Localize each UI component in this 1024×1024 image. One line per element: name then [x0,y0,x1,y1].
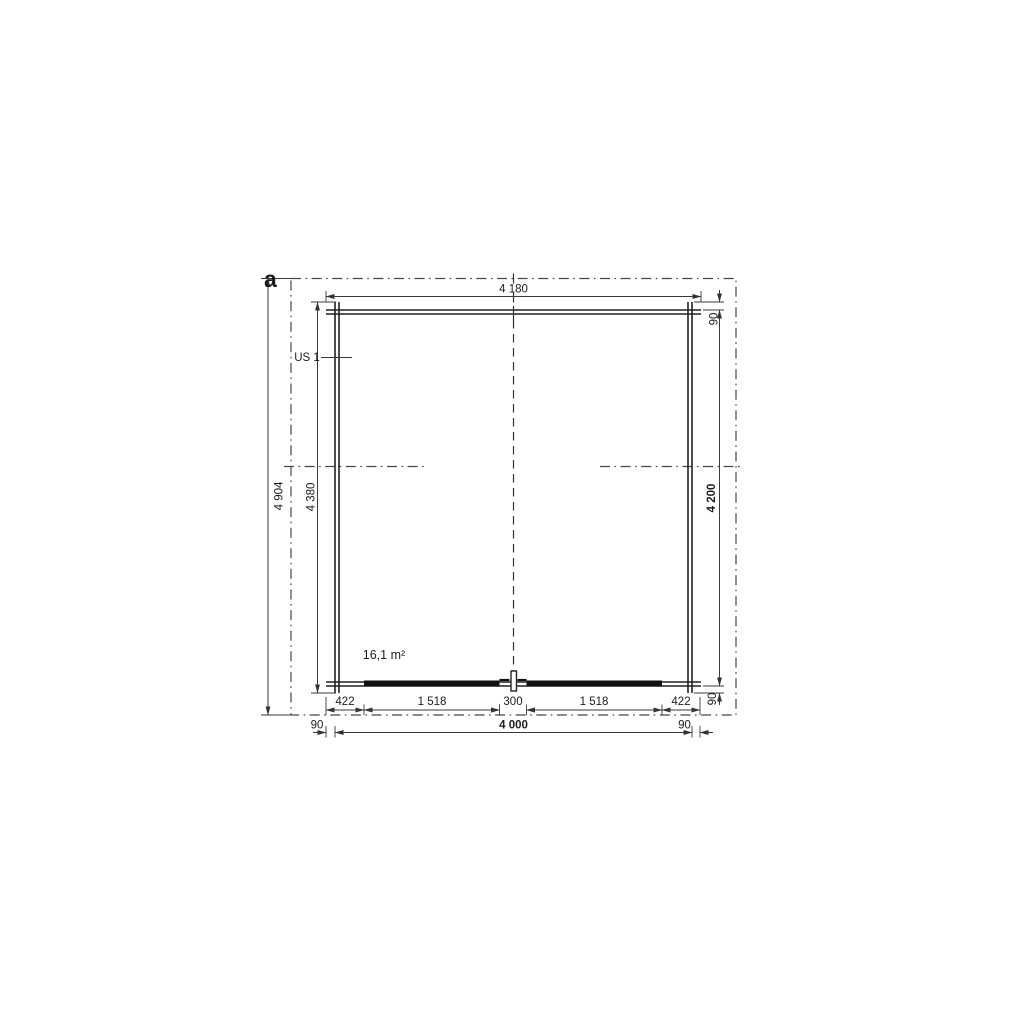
dim-label-seg-3: 1 518 [580,696,609,708]
dim-label-right-wall: 4 200 [706,484,718,513]
dim-label-right-top-offset: 90 [709,313,721,326]
dim-label-bottom-left-offset: 90 [311,720,324,732]
dim-label-seg-1: 1 518 [418,696,447,708]
dim-label-seg-0: 422 [335,696,354,708]
door-panel-right [527,681,663,687]
dim-label-right-bottom-offset: 90 [707,693,719,706]
dim-right-stack: 90 4 200 90 [694,290,724,705]
dim-left-outer: 4 904 [261,279,291,716]
dim-label-left-outer: 4 904 [274,481,286,510]
floor-plan-drawing: 4 180 4 904 4 380 90 4 200 90 [0,0,1024,1024]
dim-label-bottom-right-offset: 90 [678,720,691,732]
dim-label-bottom-width: 4 000 [499,720,528,732]
door-panel-left [364,681,500,687]
dim-label-left-wall-total: 4 380 [306,483,318,512]
dim-label-seg-2: 300 [503,696,522,708]
dim-bottom-row1: 422 1 518 300 1 518 422 [326,696,700,715]
section-label: a [264,266,277,292]
door-panels [364,671,662,691]
dim-label-top-overall: 4 180 [499,284,528,296]
area-label: 16,1 m² [363,648,405,662]
dim-bottom-row2: 90 4 000 90 [311,720,713,738]
dim-label-seg-4: 422 [671,696,690,708]
center-post [511,671,517,691]
room-label: US 1 [294,352,320,364]
